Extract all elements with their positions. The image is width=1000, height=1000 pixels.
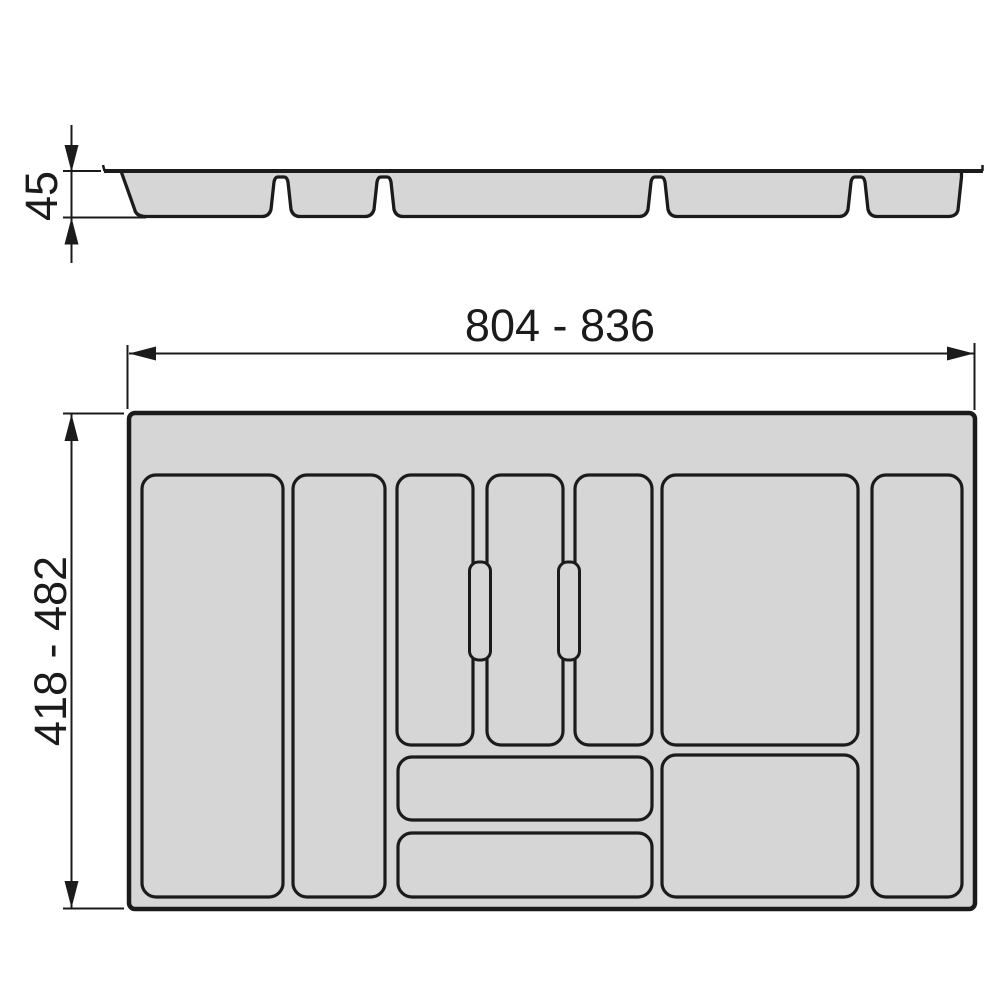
divider-pill-2 — [559, 562, 580, 660]
compartment-1 — [142, 475, 283, 897]
cross-section-body-fill — [122, 173, 962, 217]
compartment-6 — [662, 475, 858, 745]
compartment-10 — [662, 755, 858, 897]
width-arrow-right-icon — [947, 347, 974, 361]
compartment-7 — [872, 475, 962, 897]
top-view — [129, 413, 975, 909]
height-label: 418 - 482 — [25, 556, 76, 746]
width-label: 804 - 836 — [465, 300, 655, 351]
divider-pill-1 — [470, 562, 491, 660]
compartment-8 — [398, 757, 652, 820]
depth-dimension: 45 — [16, 125, 146, 263]
depth-arrow-down-icon — [65, 145, 79, 172]
compartment-5 — [575, 475, 652, 745]
width-arrow-left-icon — [129, 347, 156, 361]
cross-section-view — [103, 165, 983, 217]
height-dimension: 418 - 482 — [25, 414, 124, 909]
compartment-4 — [487, 475, 563, 745]
compartment-2 — [293, 475, 385, 897]
compartment-3 — [397, 475, 473, 745]
depth-label: 45 — [16, 171, 67, 221]
rim-left-tick — [103, 165, 105, 171]
compartment-9 — [398, 833, 652, 897]
technical-drawing: 45 804 - 836 418 - 482 — [0, 0, 1000, 1000]
height-arrow-up-icon — [65, 414, 79, 441]
width-dimension: 804 - 836 — [128, 300, 975, 410]
drawing-page: 45 804 - 836 418 - 482 — [0, 0, 1000, 1000]
height-arrow-down-icon — [65, 881, 79, 908]
